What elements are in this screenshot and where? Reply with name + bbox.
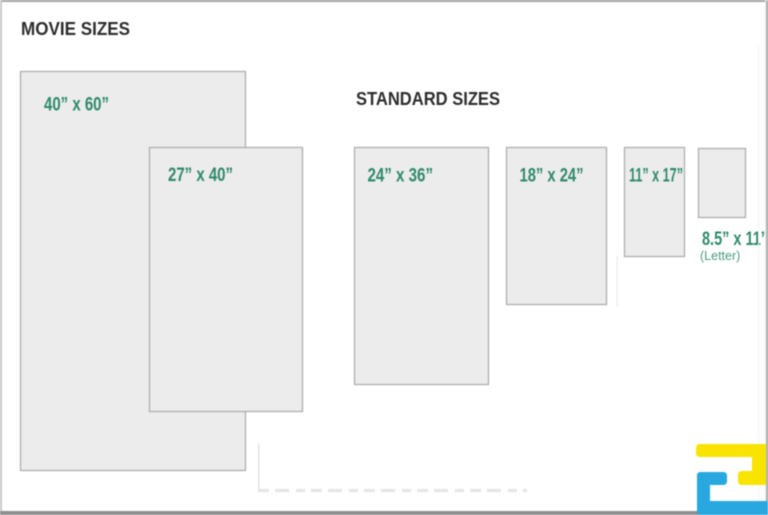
svg-text:24” x 36”: 24” x 36” <box>368 166 434 187</box>
svg-text:STANDARD SIZES: STANDARD SIZES <box>356 88 500 109</box>
svg-text:18” x 24”: 18” x 24” <box>520 166 584 187</box>
svg-text:(Letter): (Letter) <box>700 249 740 263</box>
svg-text:27” x 40”: 27” x 40” <box>168 165 233 186</box>
svg-text:MOVIE SIZES: MOVIE SIZES <box>21 18 130 39</box>
svg-text:40” x 60”: 40” x 60” <box>44 95 109 116</box>
svg-text:11” x 17”: 11” x 17” <box>629 166 683 187</box>
